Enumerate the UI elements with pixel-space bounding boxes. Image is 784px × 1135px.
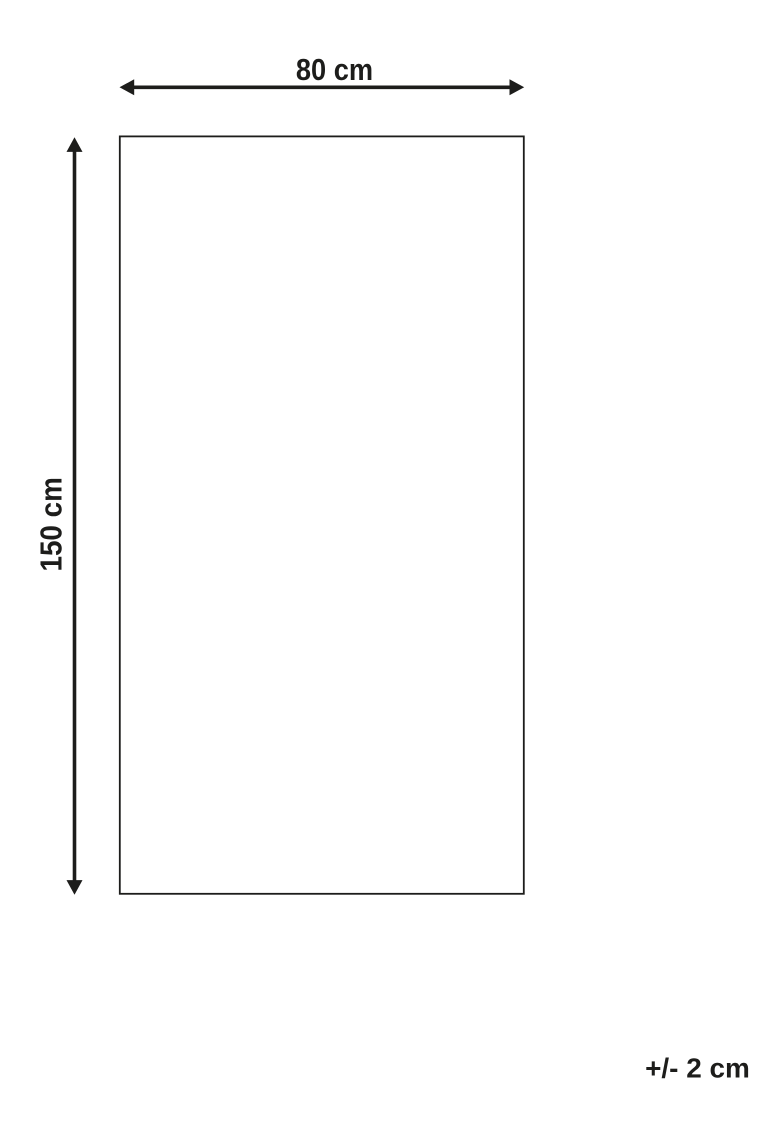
svg-text:80 cm: 80 cm <box>296 53 373 87</box>
svg-text:+/- 2 cm: +/- 2 cm <box>645 1052 750 1083</box>
svg-text:150 cm: 150 cm <box>35 477 69 571</box>
